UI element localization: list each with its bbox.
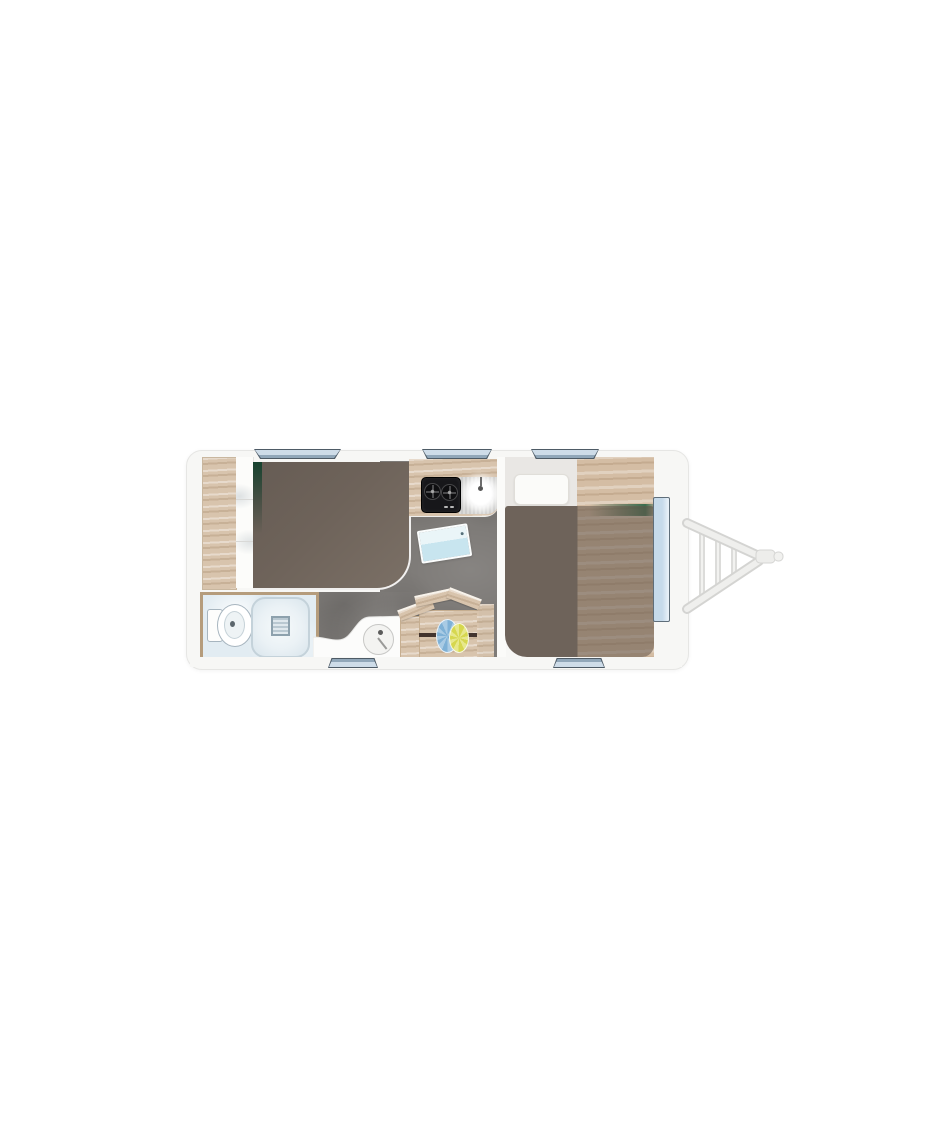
toilet-flush-button xyxy=(230,621,235,627)
bottom-wall xyxy=(190,657,682,667)
window-glass xyxy=(554,659,604,667)
kitchen-faucet xyxy=(480,477,482,486)
hitch-coupling xyxy=(756,550,783,563)
shower-drain xyxy=(271,616,290,636)
dinette-bench-left xyxy=(400,616,421,660)
window-glass xyxy=(329,659,377,667)
window-glass xyxy=(423,450,491,458)
window-glass xyxy=(532,450,598,458)
hob-knob xyxy=(450,506,454,508)
shelf-latch xyxy=(460,532,463,535)
window-top-2 xyxy=(422,449,492,459)
bed-green-accent-left xyxy=(253,462,262,534)
window-top-1 xyxy=(254,449,341,459)
hitch-beam-top xyxy=(687,523,759,556)
shelf-line xyxy=(236,541,253,542)
hob-knob xyxy=(444,506,448,508)
window-bottom-2 xyxy=(553,658,605,668)
window-top-3 xyxy=(531,449,599,459)
shelf-line xyxy=(236,499,253,500)
washbasin-faucet xyxy=(378,630,383,635)
open-shelves xyxy=(236,457,254,588)
hob-burner-left xyxy=(424,483,441,500)
window-glass xyxy=(255,450,340,458)
window-bottom-1 xyxy=(328,658,378,668)
hitch-beam-bottom xyxy=(687,561,759,609)
a-frame-hitch xyxy=(680,494,792,626)
dinette-bench-right xyxy=(477,604,494,658)
kitchen-faucet-dot xyxy=(478,486,483,491)
bed-blanket xyxy=(505,506,654,657)
decor-rosette-yellow xyxy=(449,623,469,653)
french-bed xyxy=(253,462,411,590)
wardrobe xyxy=(202,457,237,590)
pillow xyxy=(514,474,569,505)
hob-burner-right xyxy=(441,484,458,501)
entry-door xyxy=(653,497,670,622)
floorplan-canvas xyxy=(0,0,937,1125)
